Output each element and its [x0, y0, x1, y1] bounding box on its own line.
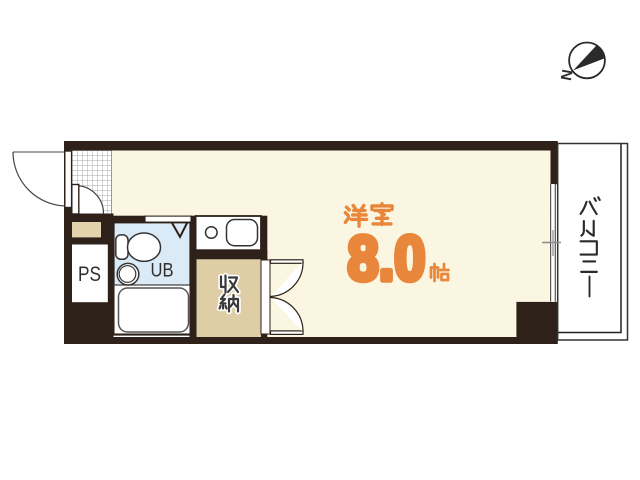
svg-text:PS: PS [78, 262, 101, 286]
svg-text:UB: UB [151, 261, 174, 282]
svg-text:8.0: 8.0 [348, 224, 426, 294]
